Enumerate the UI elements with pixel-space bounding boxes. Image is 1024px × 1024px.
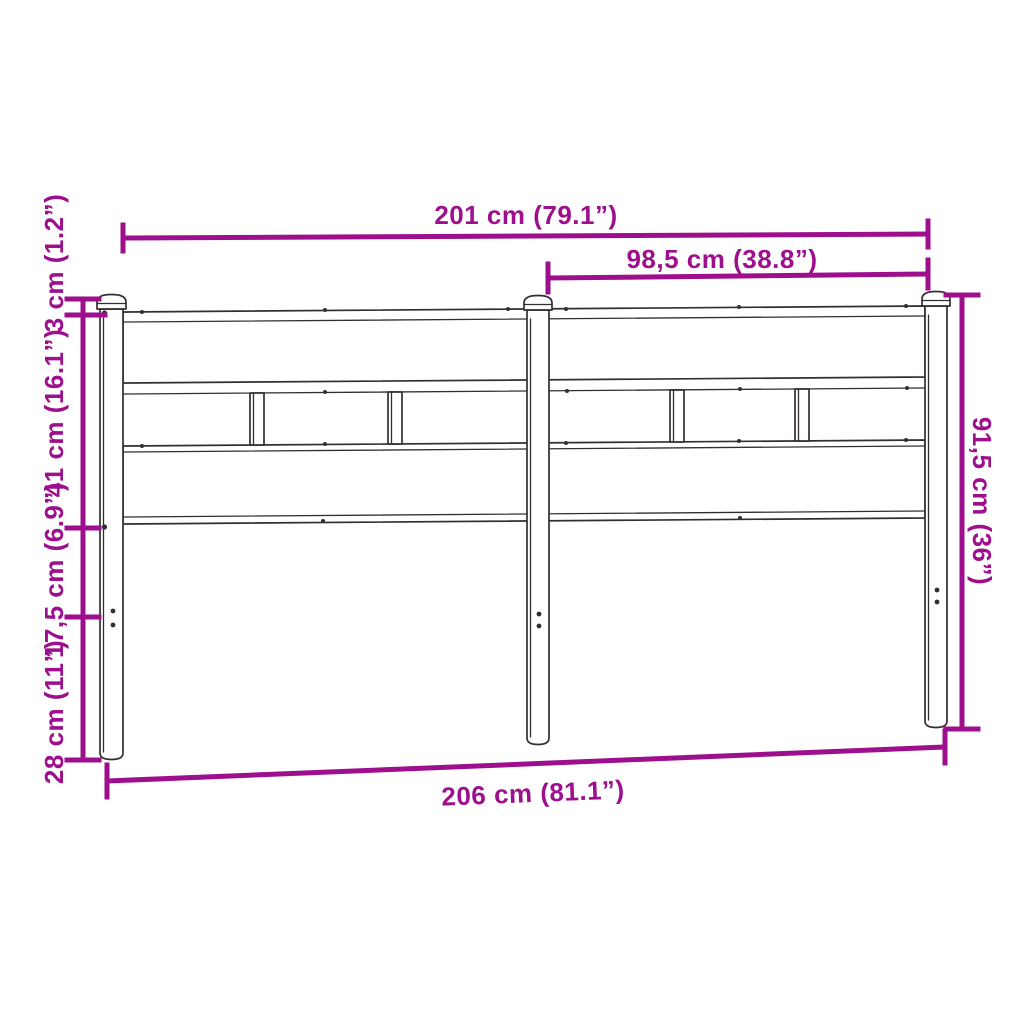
mount-hole [111,623,116,628]
screw-dot [323,308,327,312]
dimension-label-leg-height: 28 cm (11”) [39,640,69,784]
dimension-label-gap-height: 17,5 cm (6.9”) [39,482,69,658]
screw-dot [904,438,908,442]
screw-dot [102,524,107,529]
headboard-drawing [97,292,950,760]
screw-dot [321,519,325,523]
screw-dot [565,389,569,393]
mount-hole [537,624,542,629]
screw-dot [738,387,742,391]
slat [388,392,402,444]
dimension-label-total-height: 91,5 cm (36”) [967,417,997,585]
mount-hole [935,600,940,605]
screw-dot [323,390,327,394]
screw-dot [323,442,327,446]
screw-dot [737,305,741,309]
dimension-label-panel-height: 41 cm (16.1”) [39,329,69,497]
dimension-label-top-width: 201 cm (79.1”) [434,200,617,230]
dimension-line [548,274,928,278]
mount-hole [935,588,940,593]
slat [250,393,264,445]
screw-dot [506,307,510,311]
screw-dot [904,304,908,308]
dimension-left-column: 3 cm (1.2”) 41 cm (16.1”) 17,5 cm (6.9”)… [39,194,105,784]
dimension-label-half-width: 98,5 cm (38.8”) [626,244,817,274]
dimension-total-height: 91,5 cm (36”) [946,295,997,729]
diagram-page: 201 cm (79.1”) 98,5 cm (38.8”) 3 cm (1.2… [0,0,1024,1024]
screw-dot [737,439,741,443]
slat [670,390,684,442]
mount-hole [537,612,542,617]
dimension-line [107,747,945,781]
finial-cap [524,296,552,311]
headboard-dimension-diagram: 201 cm (79.1”) 98,5 cm (38.8”) 3 cm (1.2… [0,0,1024,1024]
screw-dot [140,310,144,314]
screw-dot [738,516,742,520]
dimension-bottom-width: 206 cm (81.1”) [107,731,945,812]
screw-dot [140,444,144,448]
dimension-half-width: 98,5 cm (38.8”) [548,244,928,292]
dimension-line [123,234,928,238]
screw-dot [564,441,568,445]
dimension-label-bottom-width: 206 cm (81.1”) [441,774,625,811]
screw-dot [905,386,909,390]
screw-dot [564,307,568,311]
dimension-label-cap-height: 3 cm (1.2”) [39,194,69,332]
mount-hole [111,609,116,614]
slat [795,389,809,441]
